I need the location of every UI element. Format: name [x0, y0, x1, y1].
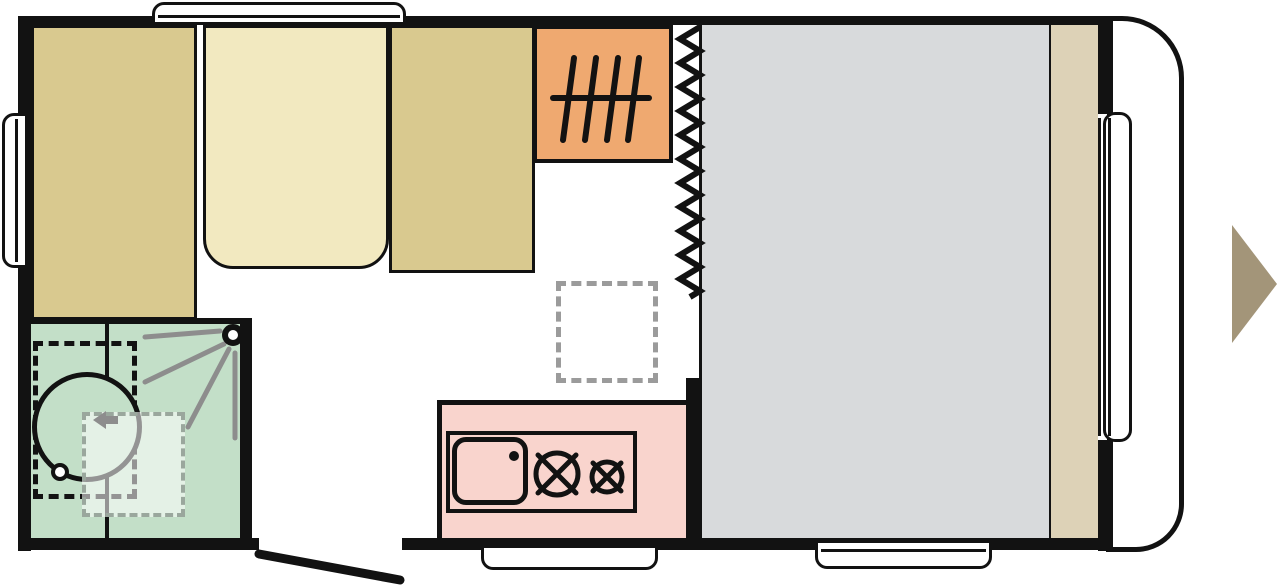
side-trim-panel: [1049, 25, 1098, 545]
dinette-table-dashed-outline: [556, 281, 658, 383]
seat-cushion-middle: [203, 25, 389, 269]
hob-burners-icon: [446, 431, 637, 513]
window-right-outer-line: [1098, 118, 1101, 436]
window-top: [152, 2, 406, 25]
window-right-inner-line: [1108, 118, 1111, 436]
bathroom-door-swing-icon: [130, 325, 245, 450]
caravan-floorplan: [0, 0, 1280, 586]
window-left-inner-line: [15, 119, 18, 262]
bench-seat-right: [389, 25, 535, 273]
entry-step: [481, 548, 658, 570]
window-bottom-inner-line: [821, 549, 986, 552]
rotation-arrow-icon: [88, 408, 120, 432]
bed-platform: [699, 25, 1049, 545]
wall-bottom-left: [18, 538, 259, 550]
bench-seat-left: [31, 25, 197, 320]
kitchen-bed-divider-wall: [686, 378, 700, 550]
drain-small-circle: [51, 463, 69, 481]
hanger-rail-icon: [533, 28, 673, 162]
wall-left: [18, 16, 31, 551]
curtain-zigzag-icon: [674, 25, 706, 303]
window-bottom: [815, 540, 992, 569]
window-top-inner-line: [158, 15, 400, 18]
entrance-door-open-icon: [254, 548, 406, 586]
travel-direction-arrow-icon: [1230, 223, 1280, 345]
